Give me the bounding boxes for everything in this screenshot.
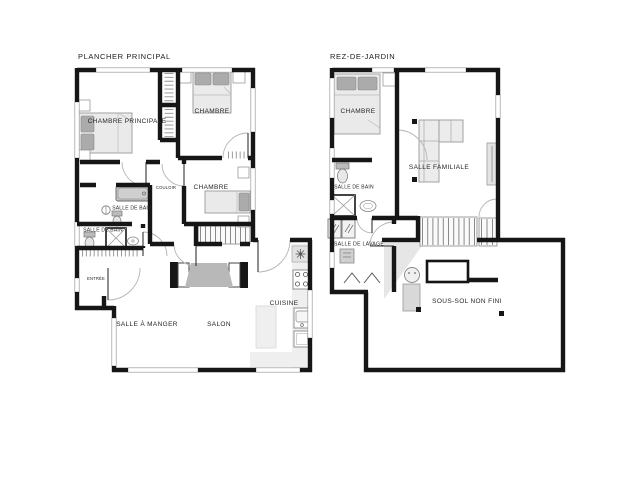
floor-plan-graphics xyxy=(0,0,640,480)
room-label-salon: SALON xyxy=(207,322,231,329)
bed-icon xyxy=(334,73,396,134)
sink-icon xyxy=(360,201,376,212)
shower-icon xyxy=(332,195,355,216)
toilet-icon xyxy=(336,163,349,183)
chevron-marks xyxy=(344,273,380,283)
plan-title-garden-level: REZ-DE-JARDIN xyxy=(330,53,395,61)
room-label-salle-de-bain-bas: SALLE DE BAIN xyxy=(83,229,123,234)
sink-icon xyxy=(128,237,139,245)
room-label-couloir: COULOIR xyxy=(156,186,176,190)
plan-title-main-floor: PLANCHER PRINCIPAL xyxy=(78,53,171,61)
room-label-salle-de-bain-rj: SALLE DE BAIN xyxy=(334,186,374,191)
furnace-icon xyxy=(403,284,420,311)
room-label-salle-familiale: SALLE FAMILIALE xyxy=(409,165,469,172)
room-label-chambre-middle: CHAMBRE xyxy=(194,185,229,192)
room-label-salle-de-bain-haut: SALLE DE BAIN xyxy=(112,207,152,212)
main-floor-plan xyxy=(75,68,312,372)
bed-top-icon xyxy=(179,71,245,113)
room-label-chambre-principale: CHAMBRE PRINCIPALE xyxy=(88,119,167,126)
bed-middle-icon xyxy=(205,167,250,227)
floor-plans-canvas: PLANCHER PRINCIPAL REZ-DE-JARDIN CHAMBRE… xyxy=(0,0,640,480)
fireplace xyxy=(170,262,248,288)
sink-icon xyxy=(102,206,110,214)
staircase xyxy=(198,226,250,244)
room-label-sous-sol: SOUS-SOL NON FINI xyxy=(432,299,502,306)
stove-icon xyxy=(293,270,310,289)
water-heater-icon xyxy=(405,268,420,283)
room-label-salle-de-lavage: SALLE DE LAVAGE xyxy=(334,242,384,247)
ceiling-fan-icon xyxy=(292,246,309,262)
room-label-chambre-rj: CHAMBRE xyxy=(341,109,376,116)
room-label-chambre-top: CHAMBRE xyxy=(195,109,230,116)
bed-master-icon xyxy=(78,100,132,161)
bathtub-icon xyxy=(116,186,150,201)
room-label-entree: ENTRÉE xyxy=(87,277,105,281)
cold-room xyxy=(427,261,468,282)
room-label-salle-a-manger: SALLE À MANGER xyxy=(116,322,178,329)
room-label-cuisine: CUISINE xyxy=(270,301,299,308)
